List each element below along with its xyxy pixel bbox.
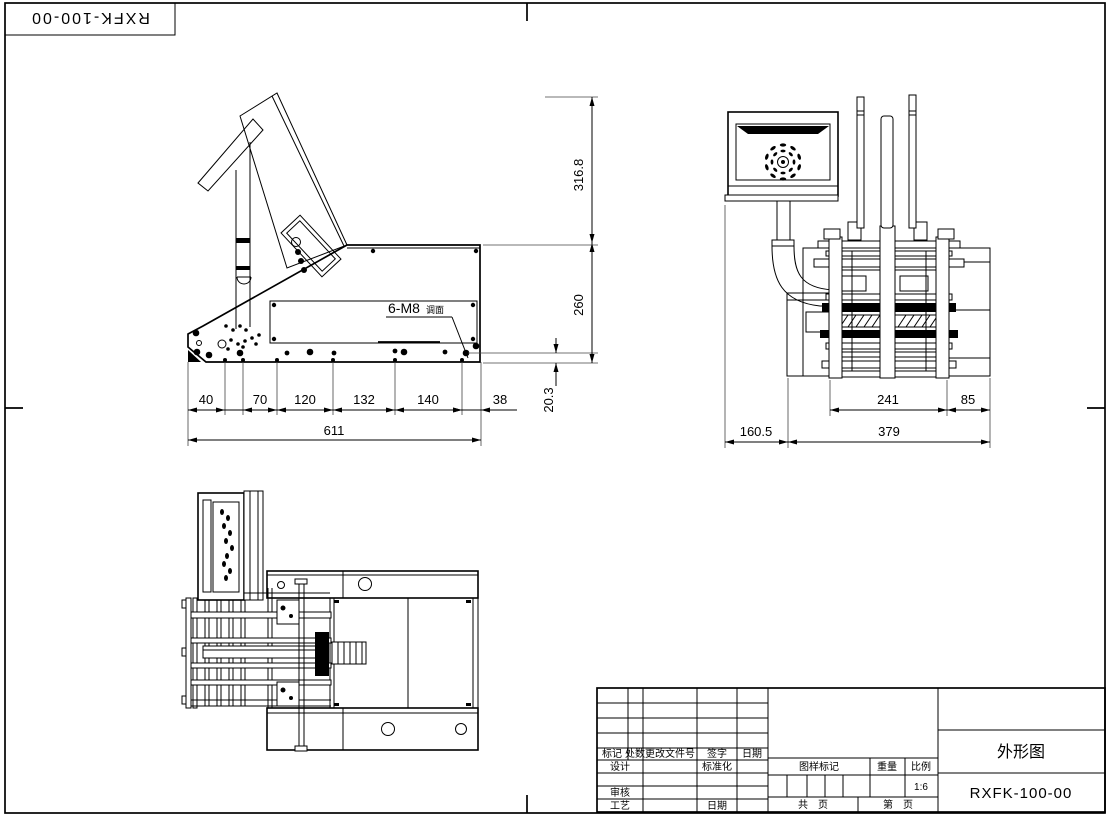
- drawing-sheet: RXFK-100-00: [0, 0, 1110, 817]
- rev-col-sign: 签字: [707, 747, 727, 760]
- front-view: [725, 95, 990, 378]
- role-design: 设计: [610, 760, 630, 773]
- title-block: 标记 处数 更改文件号 签字 日期 设计 标准化 审核 工艺 日期 图样标记 重…: [597, 688, 1105, 812]
- dim-85: 85: [961, 392, 975, 407]
- dim-20-3: 20.3: [541, 387, 556, 412]
- rev-col-date: 日期: [742, 748, 762, 760]
- pages-total: 共 页: [798, 799, 828, 811]
- role-date: 日期: [707, 800, 727, 812]
- dim-140: 140: [417, 392, 439, 407]
- plan-monitor: [198, 491, 263, 600]
- drawing-number: RXFK-100-00: [970, 785, 1073, 802]
- dim-70: 70: [253, 392, 267, 407]
- corner-stamp: RXFK-100-00: [30, 9, 150, 26]
- dim-379: 379: [878, 424, 900, 439]
- dim-40: 40: [199, 392, 213, 407]
- dim-132: 132: [353, 392, 375, 407]
- rev-col-file: 更改文件号: [645, 747, 695, 760]
- dim-611: 611: [324, 423, 345, 438]
- rev-col-count: 处数: [625, 747, 645, 760]
- side-view: 6-M8 调面: [188, 93, 480, 362]
- role-process: 工艺: [610, 800, 630, 812]
- dim-260: 260: [571, 294, 586, 316]
- role-check: 审核: [610, 786, 630, 799]
- stamp-label: 图样标记: [799, 760, 839, 773]
- monitor: [725, 112, 838, 201]
- drawing-canvas: RXFK-100-00: [0, 0, 1110, 817]
- plan-view: [182, 491, 478, 751]
- role-standard: 标准化: [702, 760, 732, 773]
- dim-160-5: 160.5: [740, 424, 773, 439]
- drawing-title: 外形图: [997, 743, 1045, 761]
- thread-note: 6-M8 调面: [386, 300, 468, 358]
- scale-label: 比例: [911, 760, 931, 773]
- thread-note-suffix: 调面: [426, 305, 444, 315]
- weight-label: 重量: [877, 760, 897, 773]
- dim-241: 241: [877, 392, 899, 407]
- rev-col-mark: 标记: [602, 748, 622, 760]
- dim-120: 120: [294, 392, 316, 407]
- pages-no: 第 页: [883, 798, 913, 811]
- scale-value: 1:6: [914, 782, 928, 793]
- dim-38: 38: [493, 392, 507, 407]
- thread-note-text: 6-M8: [388, 300, 420, 316]
- dim-316-8: 316.8: [571, 159, 586, 192]
